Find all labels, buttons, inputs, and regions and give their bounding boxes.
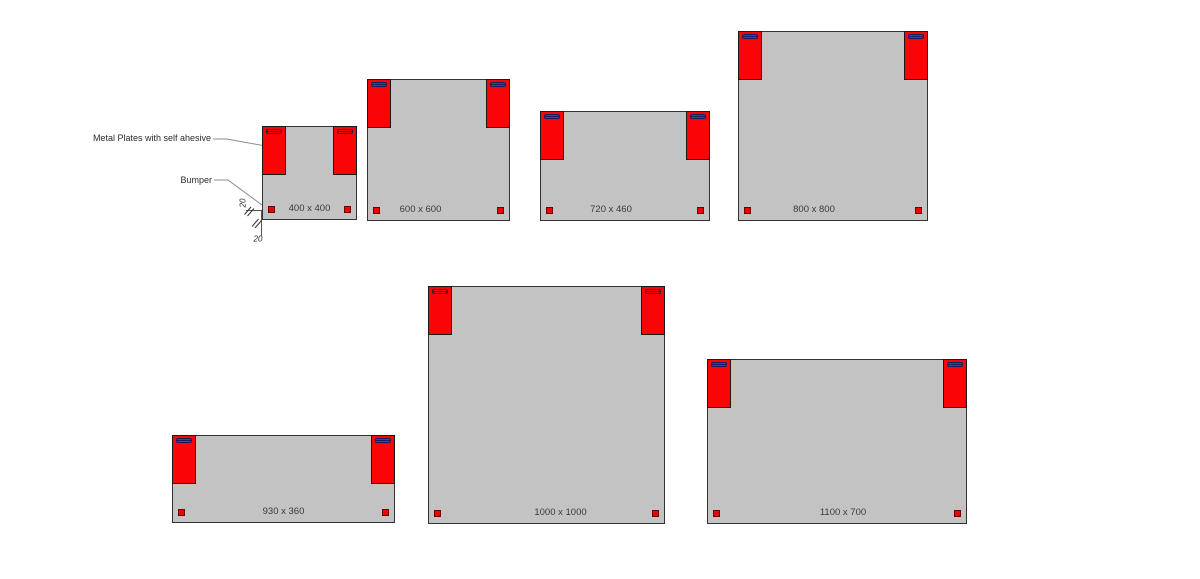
bumper-bottom-right — [382, 509, 389, 516]
keyhole-slot-icon — [176, 438, 192, 443]
panel-size-label: 600 x 600 — [400, 204, 442, 215]
metal-plate-top-left — [428, 286, 452, 335]
bumper-bottom-right — [954, 510, 961, 517]
panel-size-label: 400 x 400 — [289, 203, 331, 214]
metal-plate-top-right — [333, 126, 357, 175]
bumper-bottom-right — [344, 206, 351, 213]
bumper-bottom-right — [497, 207, 504, 214]
bumper-bottom-right — [915, 207, 922, 214]
keyhole-slot-icon — [645, 289, 661, 294]
metal-plate-top-left — [367, 79, 391, 128]
keyhole-slot-icon — [947, 362, 963, 367]
bumper-bottom-left — [434, 510, 441, 517]
bumper-bottom-left — [744, 207, 751, 214]
keyhole-slot-icon — [375, 438, 391, 443]
metal-plates-callout-label: Metal Plates with self ahesive — [93, 133, 211, 143]
panel-1100x700: 1100 x 700 — [707, 359, 967, 524]
panel-size-label: 1000 x 1000 — [534, 507, 586, 518]
keyhole-slot-icon — [690, 114, 706, 119]
metal-plate-top-left — [172, 435, 196, 484]
panel-size-label: 1100 x 700 — [820, 507, 866, 518]
keyhole-slot-icon — [432, 289, 448, 294]
metal-plate-top-left — [540, 111, 564, 160]
bumper-bottom-left — [546, 207, 553, 214]
panel-720x460: 720 x 460 — [540, 111, 710, 221]
keyhole-slot-icon — [742, 34, 758, 39]
metal-plate-top-left — [707, 359, 731, 408]
bumper-bottom-right — [652, 510, 659, 517]
panel-600x600: 600 x 600 — [367, 79, 510, 221]
metal-plate-top-right — [486, 79, 510, 128]
metal-plate-top-right — [686, 111, 710, 160]
bumper-bottom-left — [373, 207, 380, 214]
metal-plate-top-right — [371, 435, 395, 484]
bumper-callout-label: Bumper — [180, 175, 212, 185]
metal-plate-top-right — [641, 286, 665, 335]
keyhole-slot-icon — [544, 114, 560, 119]
dimension-value-left-offset: 20 — [239, 199, 248, 208]
panel-size-label: 800 x 800 — [793, 204, 835, 215]
metal-plate-top-right — [904, 31, 928, 80]
keyhole-slot-icon — [490, 82, 506, 87]
metal-plate-top-right — [943, 359, 967, 408]
dim-tick-mark — [248, 209, 255, 217]
dim-tick-mark — [252, 219, 259, 227]
panel-930x360: 930 x 360 — [172, 435, 395, 523]
panel-1000x1000: 1000 x 1000 — [428, 286, 665, 524]
keyhole-slot-icon — [337, 129, 353, 134]
dimension-value-bottom-offset: 20 — [254, 235, 263, 244]
dim-tick-mark — [255, 221, 262, 229]
panel-size-label: 930 x 360 — [263, 506, 305, 517]
diagram-canvas: Metal Plates with self ahesive Bumper 20… — [0, 0, 1200, 579]
panel-800x800: 800 x 800 — [738, 31, 928, 221]
bumper-bottom-left — [178, 509, 185, 516]
metal-plate-top-left — [738, 31, 762, 80]
bumper-bottom-left — [268, 206, 275, 213]
bumper-bottom-right — [697, 207, 704, 214]
dim-tick-mark — [245, 207, 252, 215]
keyhole-slot-icon — [908, 34, 924, 39]
panel-size-label: 720 x 460 — [590, 204, 632, 215]
keyhole-slot-icon — [266, 129, 282, 134]
keyhole-slot-icon — [711, 362, 727, 367]
metal-plate-top-left — [262, 126, 286, 175]
keyhole-slot-icon — [371, 82, 387, 87]
panel-400x400: 400 x 400 — [262, 126, 357, 220]
bumper-bottom-left — [713, 510, 720, 517]
